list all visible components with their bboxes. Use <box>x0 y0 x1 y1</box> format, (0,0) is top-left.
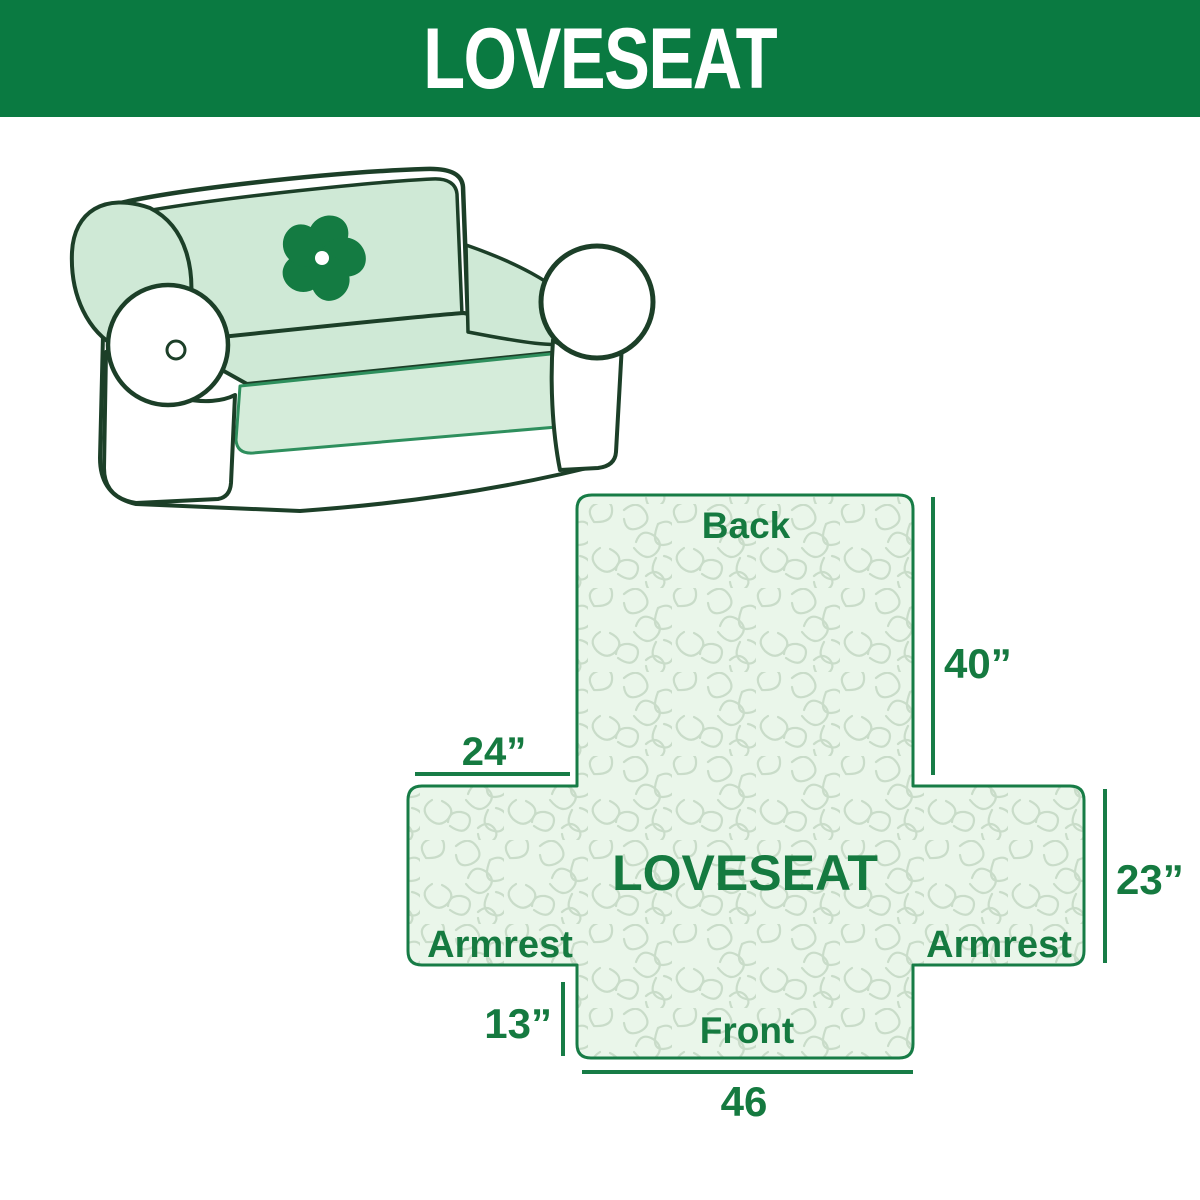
sofa-right-arm-roll <box>541 246 653 358</box>
dim-armrest-height: 23” <box>1116 856 1184 903</box>
cover-outline-shape <box>408 495 1084 1058</box>
page-title: LOVESEAT <box>424 16 777 102</box>
armrest-right-label: Armrest <box>926 924 1072 966</box>
center-label: LOVESEAT <box>612 845 878 901</box>
sofa-left-arm-swirl <box>167 341 185 359</box>
dim-front-drop: 13” <box>484 1000 552 1047</box>
page: LOVESEAT <box>0 0 1200 1200</box>
dim-front-width: 46 <box>721 1078 768 1125</box>
dim-armrest-width: 24” <box>462 730 527 774</box>
dim-back-height: 40” <box>944 640 1012 687</box>
front-label: Front <box>700 1010 795 1051</box>
header-banner: LOVESEAT <box>0 0 1200 117</box>
cover-dimension-diagram: Back 40” 24” LOVESEAT Armrest Armrest 23… <box>390 478 1200 1138</box>
armrest-left-label: Armrest <box>427 924 573 966</box>
back-label: Back <box>702 505 791 546</box>
